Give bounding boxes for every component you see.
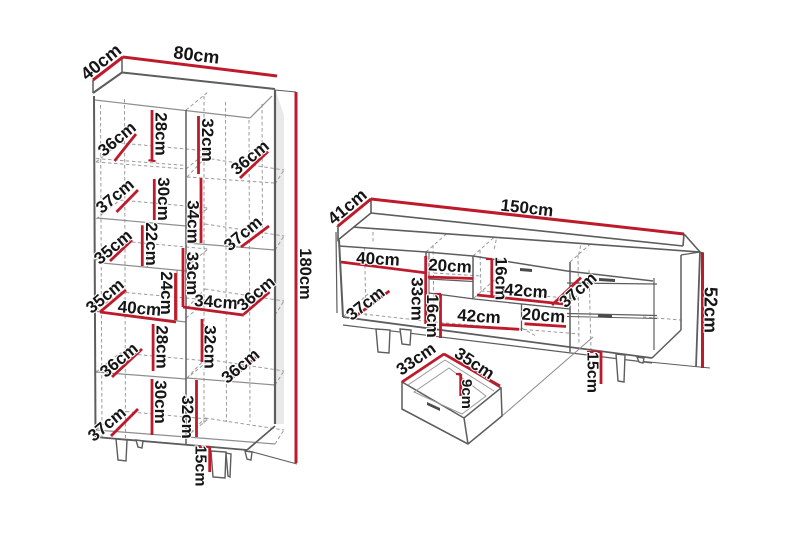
- svg-text:34cm: 34cm: [184, 200, 203, 243]
- svg-text:20cm: 20cm: [428, 255, 472, 276]
- svg-text:15cm: 15cm: [192, 446, 209, 487]
- svg-text:22cm: 22cm: [142, 222, 161, 265]
- svg-text:52cm: 52cm: [701, 287, 721, 333]
- svg-text:16cm: 16cm: [423, 294, 442, 337]
- svg-text:28cm: 28cm: [152, 112, 171, 155]
- svg-text:40cm: 40cm: [356, 248, 400, 269]
- svg-text:15cm: 15cm: [584, 352, 601, 393]
- svg-text:30cm: 30cm: [151, 380, 170, 423]
- svg-text:180cm: 180cm: [296, 248, 314, 299]
- svg-text:28cm: 28cm: [153, 325, 172, 368]
- svg-text:40cm: 40cm: [117, 297, 162, 320]
- svg-text:32cm: 32cm: [198, 118, 217, 161]
- svg-text:34cm: 34cm: [194, 291, 239, 313]
- svg-text:32cm: 32cm: [178, 395, 197, 438]
- svg-text:32cm: 32cm: [201, 325, 220, 368]
- svg-text:20cm: 20cm: [521, 305, 566, 327]
- svg-text:42cm: 42cm: [504, 280, 549, 302]
- svg-text:42cm: 42cm: [457, 306, 502, 328]
- svg-text:30cm: 30cm: [154, 177, 173, 220]
- svg-text:33cm: 33cm: [183, 252, 202, 295]
- svg-text:9cm: 9cm: [458, 379, 475, 409]
